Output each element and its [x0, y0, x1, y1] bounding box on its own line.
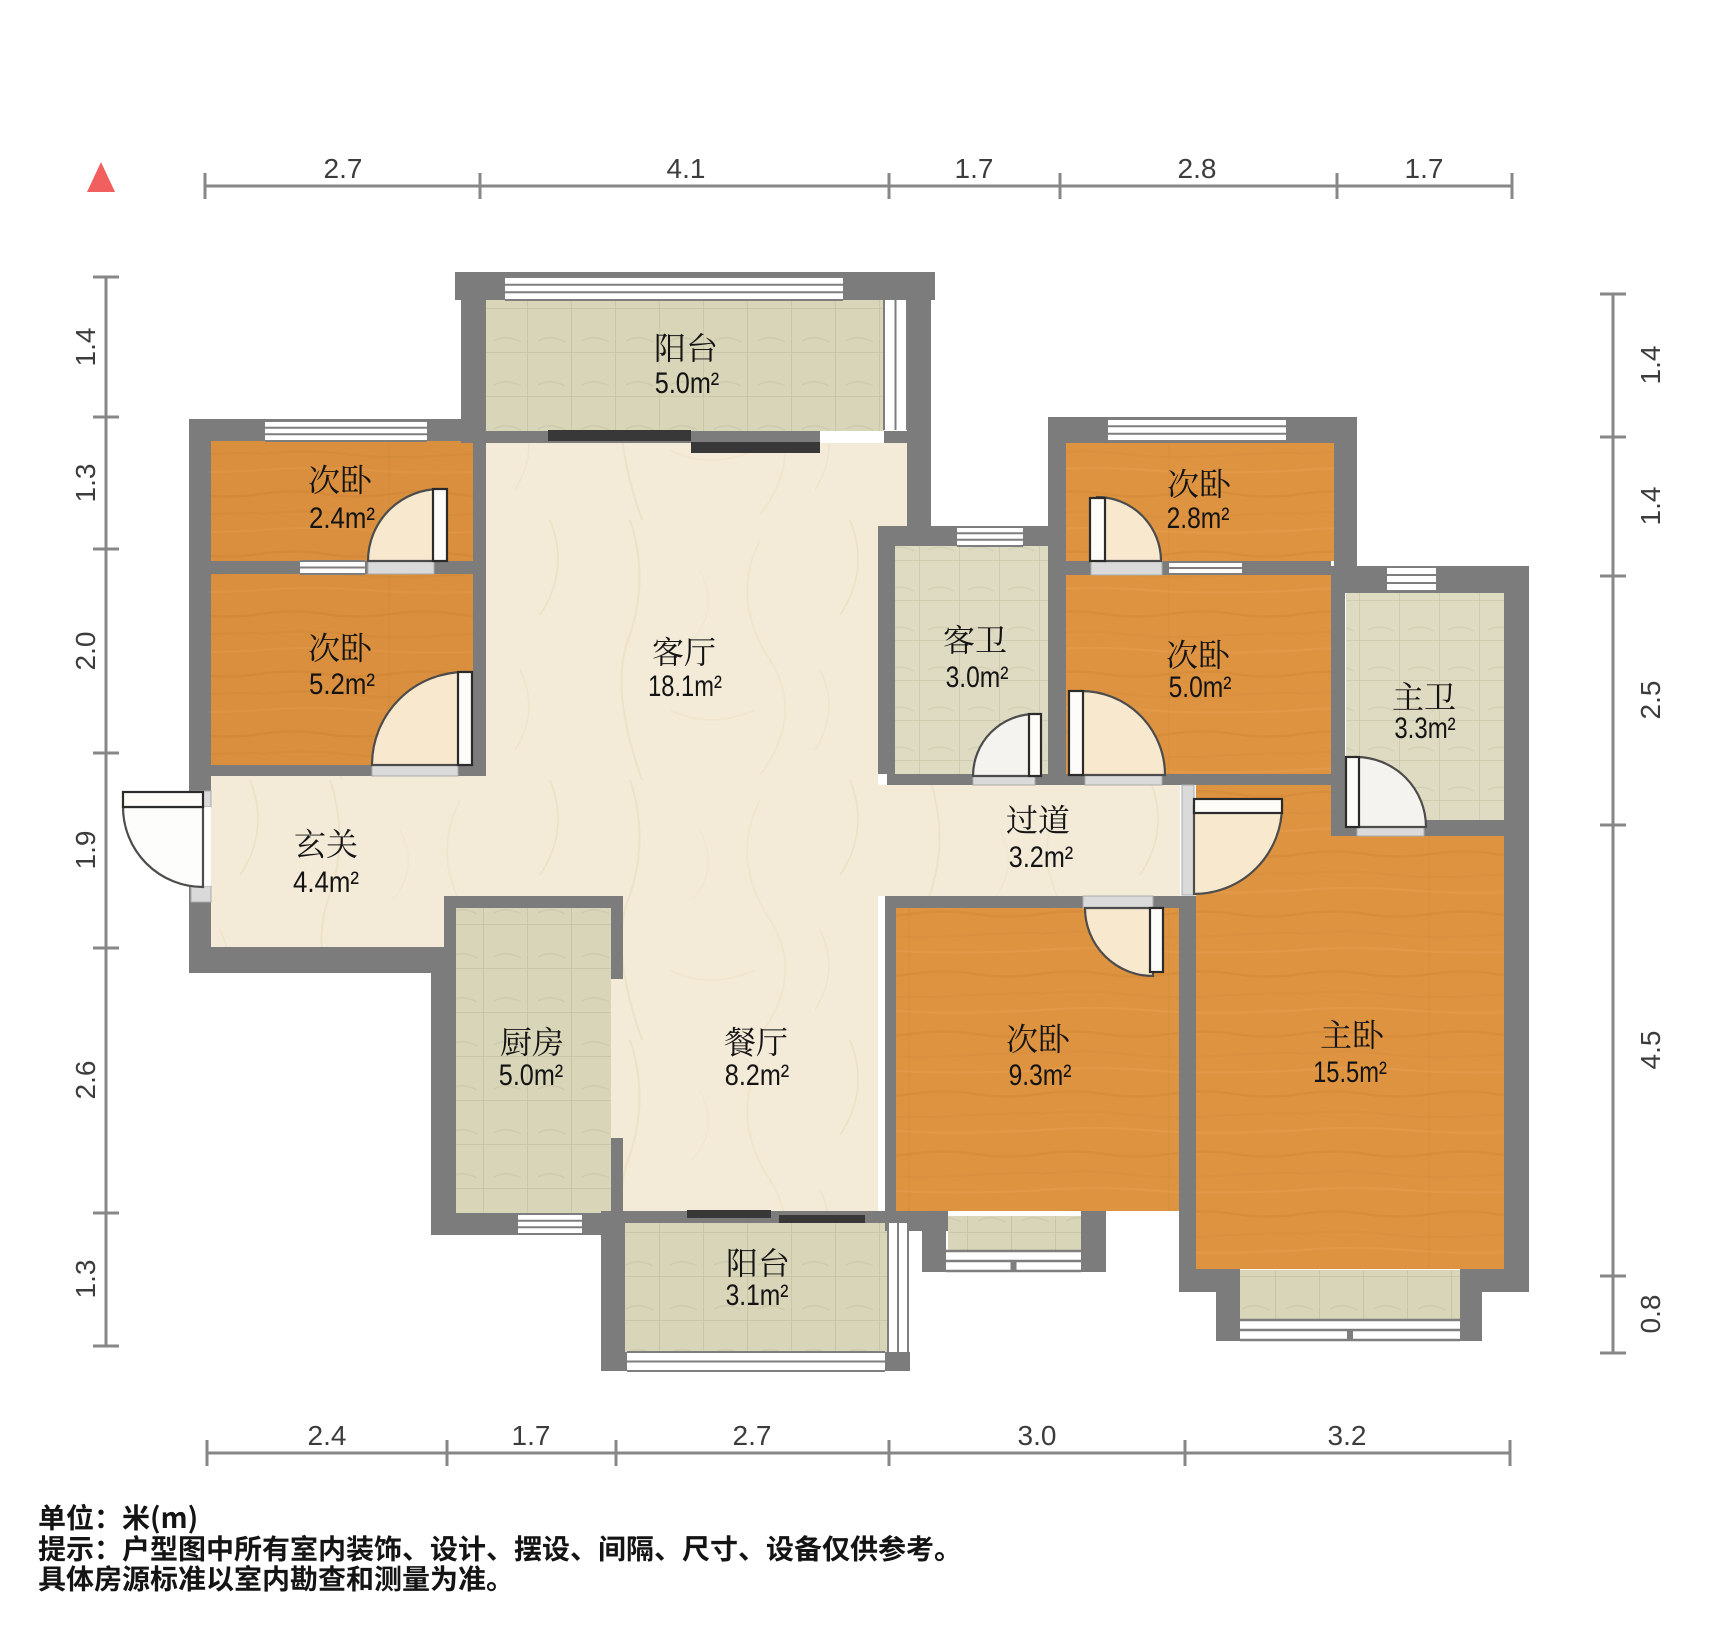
svg-text:3.3m²: 3.3m²	[1394, 710, 1455, 744]
svg-text:2.6: 2.6	[70, 1061, 101, 1100]
svg-text:2.8m²: 2.8m²	[1167, 501, 1230, 535]
svg-text:1.9: 1.9	[70, 831, 101, 870]
svg-text:3.2: 3.2	[1328, 1420, 1367, 1451]
svg-text:1.3: 1.3	[70, 1260, 101, 1299]
svg-text:5.2m²: 5.2m²	[309, 667, 375, 700]
svg-text:5.0m²: 5.0m²	[499, 1058, 563, 1092]
svg-text:9.3m²: 9.3m²	[1009, 1058, 1072, 1092]
svg-text:4.5: 4.5	[1635, 1031, 1666, 1070]
svg-text:1.7: 1.7	[1405, 153, 1444, 184]
svg-text:2.7: 2.7	[733, 1420, 772, 1451]
svg-text:0.8: 0.8	[1635, 1295, 1666, 1334]
svg-text:3.2m²: 3.2m²	[1009, 840, 1073, 874]
svg-text:15.5m²: 15.5m²	[1313, 1055, 1387, 1088]
svg-text:1.4: 1.4	[70, 328, 101, 367]
svg-text:5.0m²: 5.0m²	[1169, 670, 1232, 704]
svg-text:1.4: 1.4	[1635, 487, 1666, 526]
svg-text:1.7: 1.7	[955, 153, 994, 184]
svg-text:5.0m²: 5.0m²	[655, 366, 719, 400]
svg-text:3.0m²: 3.0m²	[946, 660, 1009, 694]
svg-text:2.8: 2.8	[1178, 153, 1217, 184]
svg-text:1.7: 1.7	[512, 1420, 551, 1451]
svg-text:2.7: 2.7	[324, 153, 363, 184]
svg-text:2.5: 2.5	[1635, 681, 1666, 720]
svg-text:1.4: 1.4	[1635, 346, 1666, 385]
svg-text:18.1m²: 18.1m²	[648, 669, 722, 702]
svg-text:4.4m²: 4.4m²	[293, 865, 359, 898]
svg-text:3.1m²: 3.1m²	[726, 1278, 789, 1312]
svg-text:3.0: 3.0	[1018, 1420, 1057, 1451]
svg-text:2.4: 2.4	[308, 1420, 347, 1451]
svg-text:8.2m²: 8.2m²	[725, 1058, 789, 1092]
svg-text:1.3: 1.3	[70, 464, 101, 503]
svg-text:2.0: 2.0	[70, 632, 101, 671]
svg-text:2.4m²: 2.4m²	[309, 501, 375, 534]
svg-text:4.1: 4.1	[667, 153, 706, 184]
